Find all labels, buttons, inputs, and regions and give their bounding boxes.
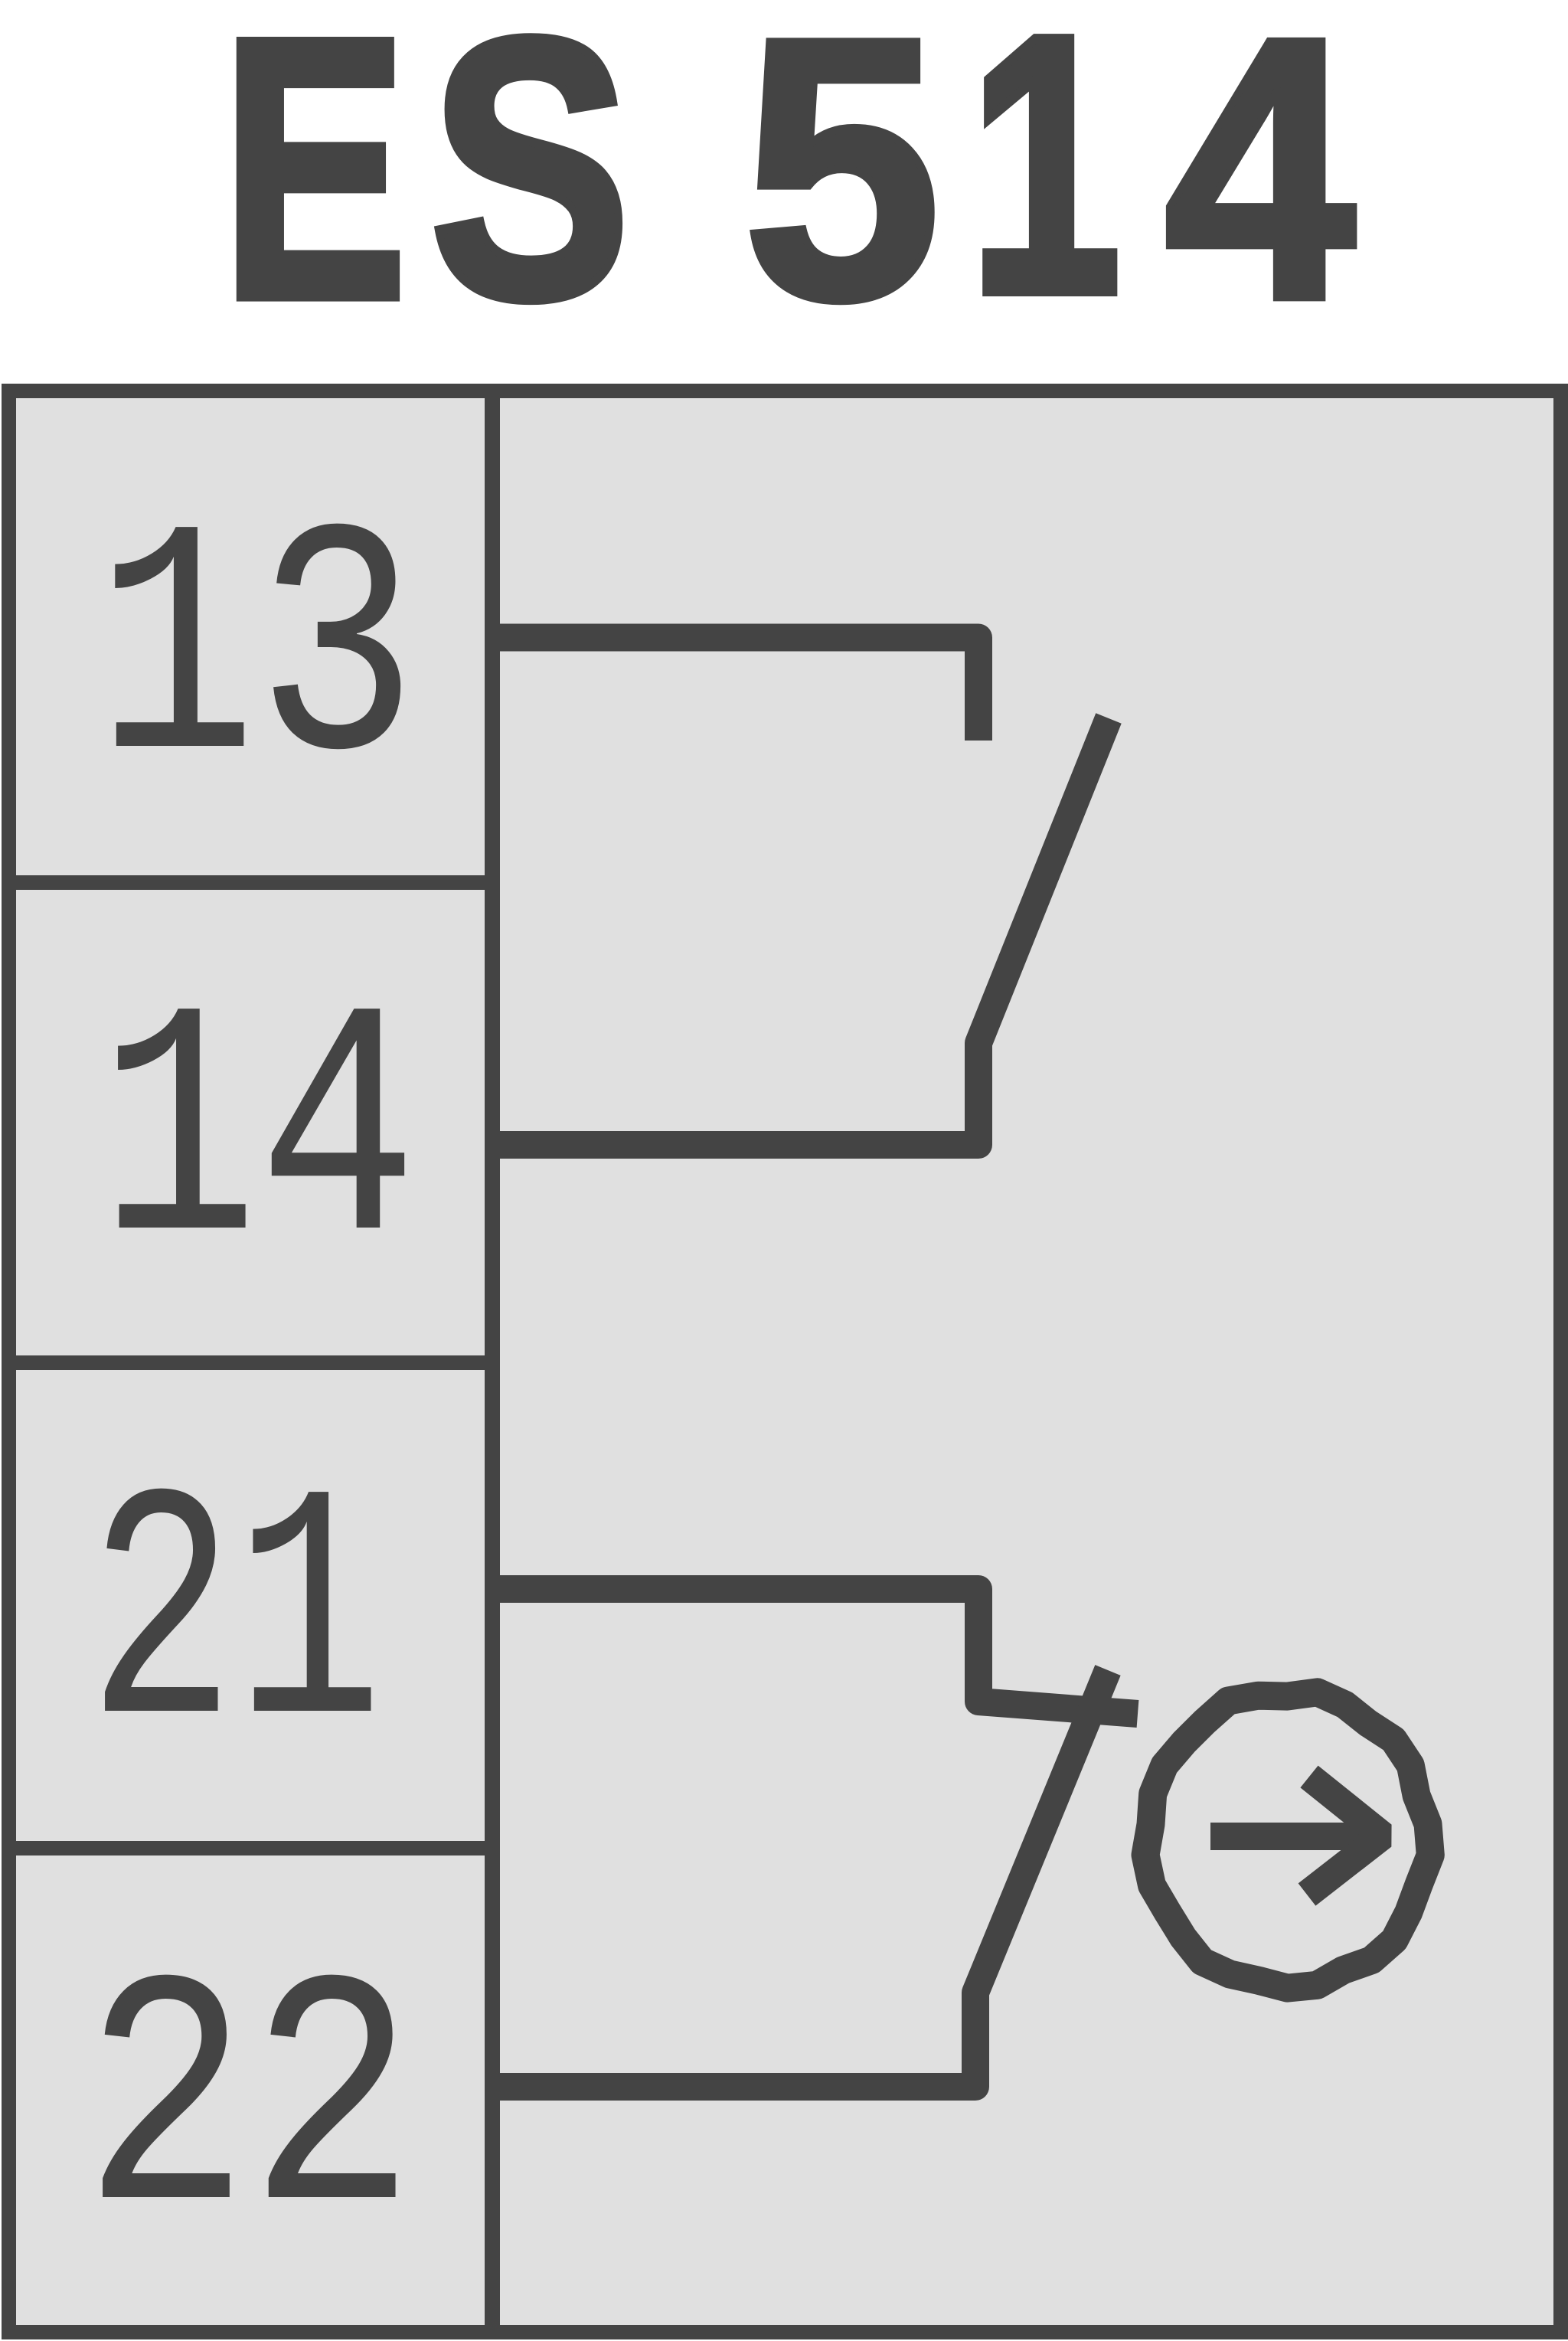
svg-text:22: 22 [83,1921,415,2297]
svg-text:21: 21 [88,1434,383,1810]
svg-text:5: 5 [743,0,941,377]
svg-text:13: 13 [96,470,417,846]
svg-text:S: S [430,0,631,376]
svg-text:1: 1 [969,0,1121,369]
svg-text:E: E [222,0,407,375]
svg-text:4: 4 [1165,0,1357,376]
svg-text:14: 14 [99,952,418,1328]
